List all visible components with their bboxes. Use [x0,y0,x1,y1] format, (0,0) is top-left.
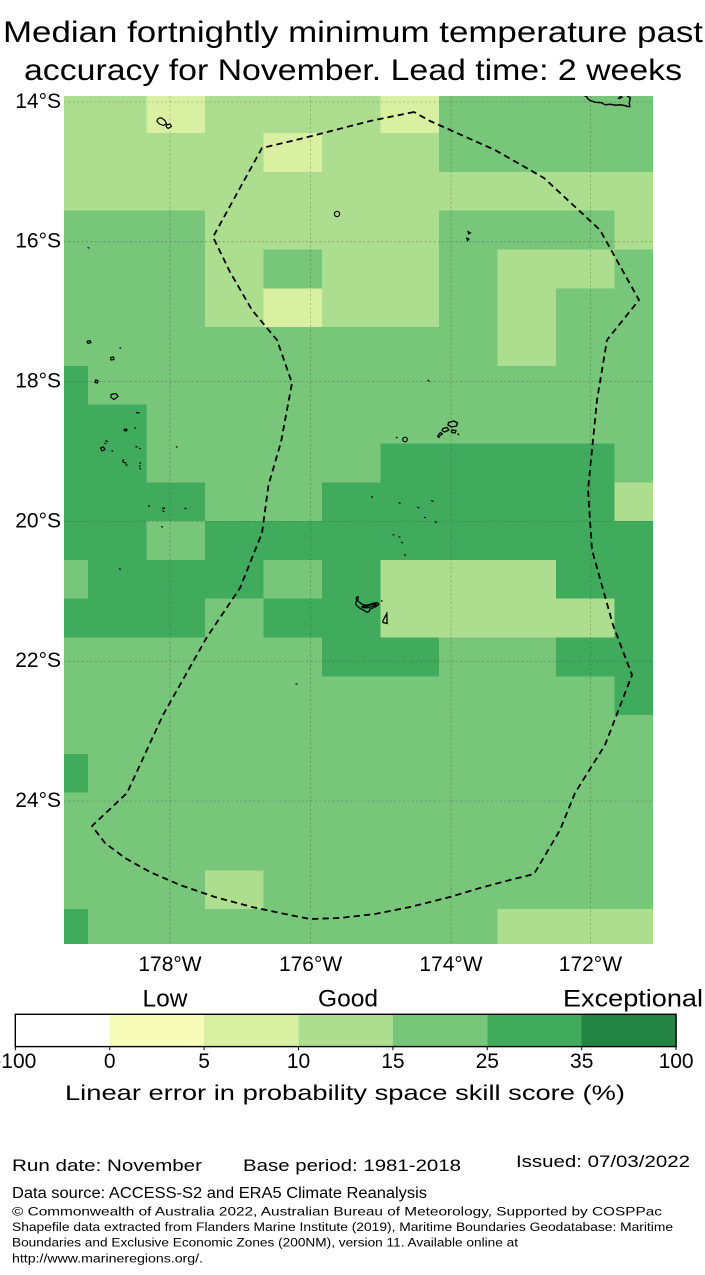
svg-text:-100: -100 [0,1050,36,1073]
svg-text:Median fortnightly minimum tem: Median fortnightly minimum temperature p… [3,16,703,49]
svg-text:Exceptional: Exceptional [563,986,703,1013]
svg-text:20°S: 20°S [15,509,61,532]
svg-text:25: 25 [476,1050,499,1073]
svg-text:Shapefile data extracted from: Shapefile data extracted from Flanders M… [12,1220,673,1234]
svg-text:10: 10 [287,1050,310,1073]
svg-text:Boundaries and Exclusive Econo: Boundaries and Exclusive Economic Zones … [12,1236,519,1250]
svg-text:35: 35 [570,1050,593,1073]
svg-text:5: 5 [198,1050,210,1073]
svg-text:15: 15 [381,1050,404,1073]
svg-text:16°S: 16°S [15,230,61,253]
svg-text:18°S: 18°S [15,370,61,393]
svg-text:24°S: 24°S [15,789,61,812]
svg-text:http://www.marineregions.org/.: http://www.marineregions.org/. [12,1252,203,1266]
svg-text:176°W: 176°W [279,953,342,976]
svg-text:Data source: ACCESS-S2 and ERA: Data source: ACCESS-S2 and ERA5 Climate … [12,1185,427,1202]
svg-text:Good: Good [318,986,378,1013]
svg-text:178°W: 178°W [138,953,201,976]
svg-text:Run date: November: Run date: November [12,1157,203,1175]
svg-text:14°S: 14°S [15,90,61,113]
svg-text:174°W: 174°W [419,953,482,976]
svg-text:Low: Low [143,986,188,1013]
svg-text:100: 100 [659,1050,694,1073]
svg-text:Linear error in probability sp: Linear error in probability space skill … [65,1081,625,1105]
svg-text:© Commonwealth of Australia 20: © Commonwealth of Australia 2022, Austra… [12,1205,662,1219]
svg-text:0: 0 [104,1050,116,1073]
svg-text:accuracy for November. Lead ti: accuracy for November. Lead time: 2 week… [24,54,682,87]
svg-text:Issued: 07/03/2022: Issued: 07/03/2022 [516,1153,690,1171]
svg-text:Base period: 1981-2018: Base period: 1981-2018 [243,1157,461,1175]
svg-text:172°W: 172°W [559,953,622,976]
svg-text:22°S: 22°S [15,649,61,672]
